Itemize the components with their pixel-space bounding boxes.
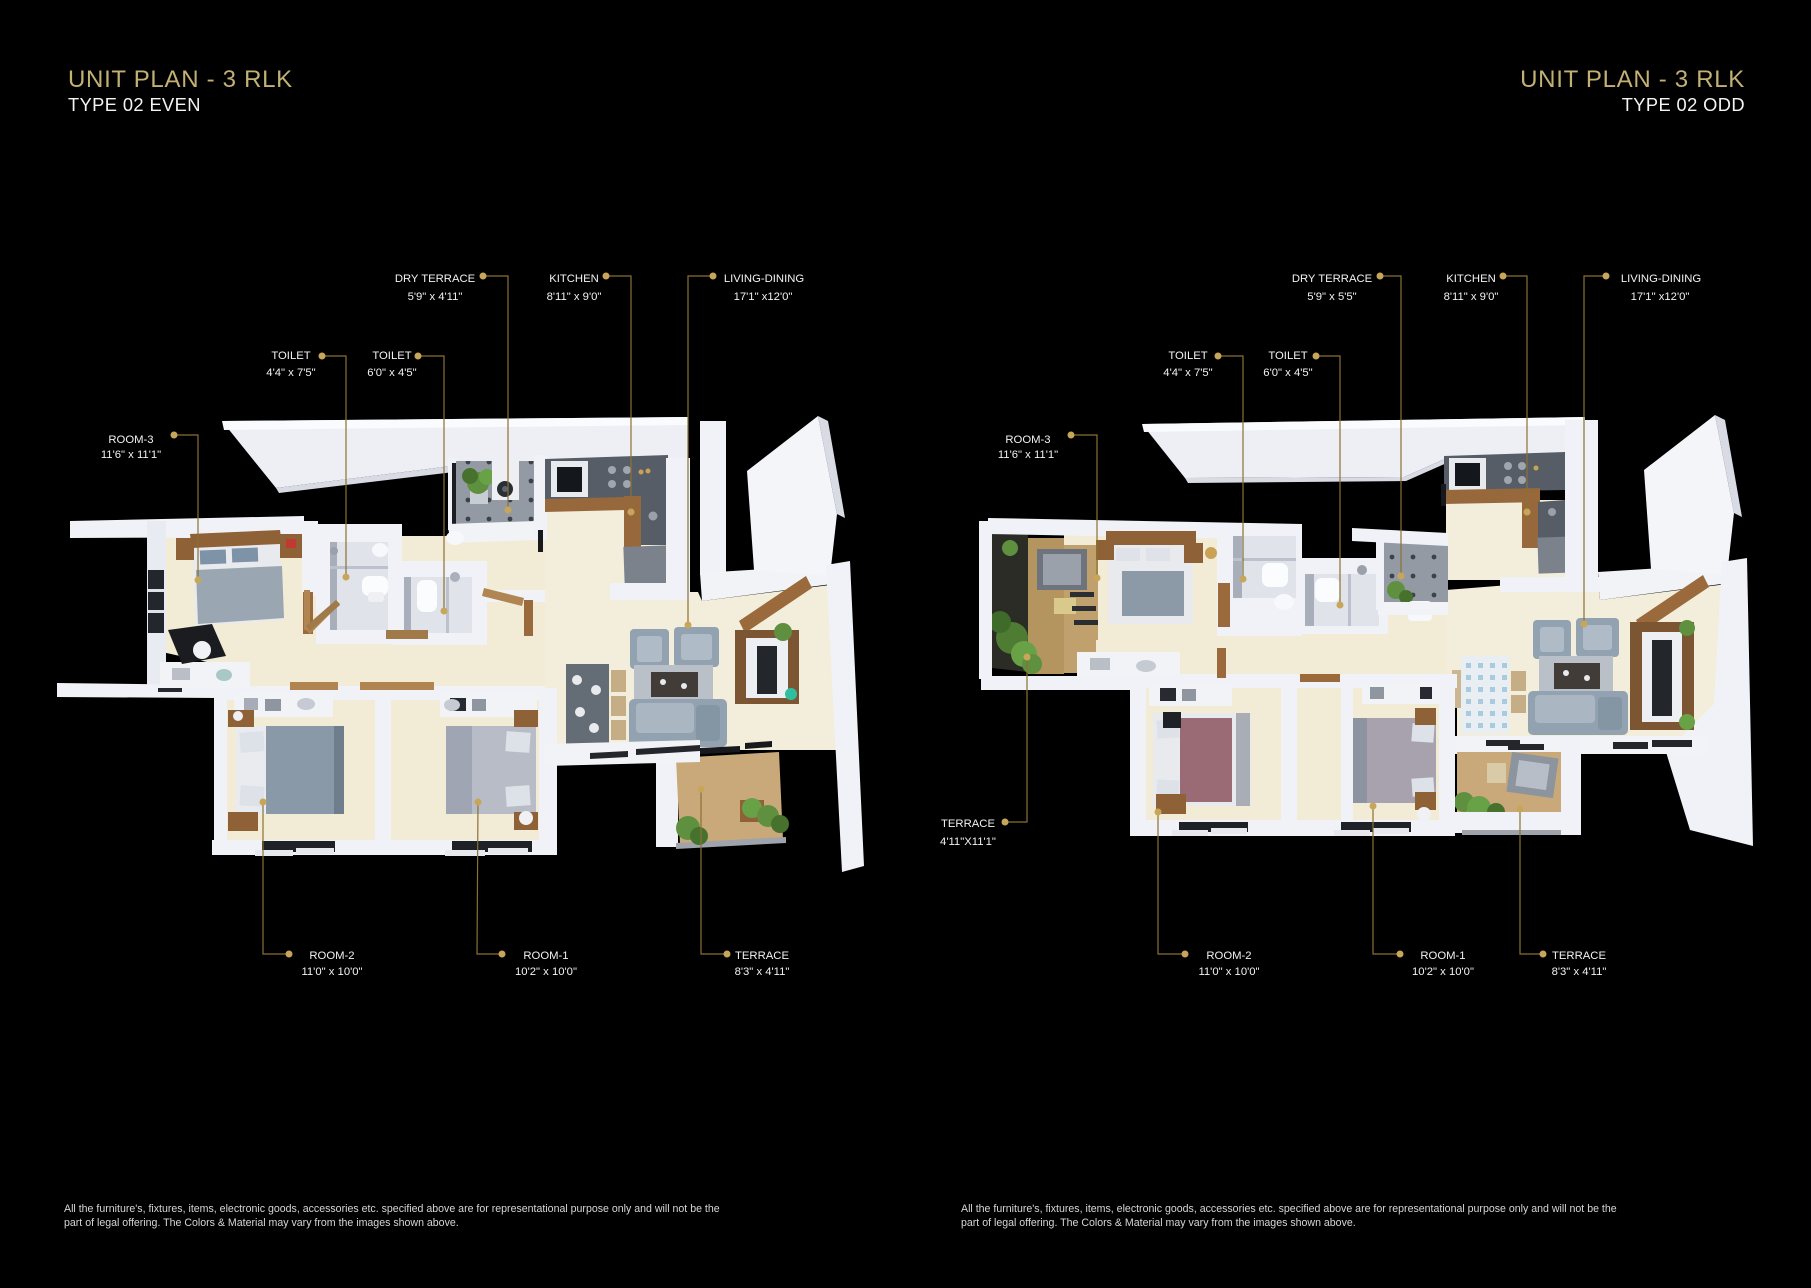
svg-text:17'1" x12'0": 17'1" x12'0" [734,291,793,303]
svg-text:KITCHEN: KITCHEN [1446,273,1496,285]
svg-text:LIVING-DINING: LIVING-DINING [1621,273,1701,285]
svg-text:ROOM-1: ROOM-1 [523,950,568,962]
svg-text:All the furniture's, fixtures,: All the furniture's, fixtures, items, el… [961,1203,1617,1215]
svg-text:ROOM-3: ROOM-3 [1005,434,1050,446]
svg-text:6'0" x 4'5": 6'0" x 4'5" [367,367,416,379]
svg-text:4'11"X11'1": 4'11"X11'1" [940,836,996,848]
svg-text:TERRACE: TERRACE [735,950,789,962]
svg-text:4'4" x 7'5": 4'4" x 7'5" [1163,367,1212,379]
svg-text:6'0" x 4'5": 6'0" x 4'5" [1263,367,1312,379]
svg-text:LIVING-DINING: LIVING-DINING [724,273,804,285]
svg-text:4'4" x 7'5": 4'4" x 7'5" [266,367,315,379]
svg-text:ROOM-2: ROOM-2 [1206,950,1251,962]
svg-text:8'11" x 9'0": 8'11" x 9'0" [547,291,602,303]
svg-text:5'9" x 4'11": 5'9" x 4'11" [408,291,463,303]
svg-text:ROOM-2: ROOM-2 [309,950,354,962]
svg-text:DRY TERRACE: DRY TERRACE [395,273,476,285]
svg-text:11'6" x 11'1": 11'6" x 11'1" [101,449,161,461]
svg-text:ROOM-1: ROOM-1 [1420,950,1465,962]
svg-text:ROOM-3: ROOM-3 [108,434,153,446]
svg-text:5'9" x 5'5": 5'9" x 5'5" [1307,291,1356,303]
svg-text:KITCHEN: KITCHEN [549,273,599,285]
svg-text:11'0" x 10'0": 11'0" x 10'0" [1198,966,1259,978]
svg-text:TERRACE: TERRACE [941,818,995,830]
svg-text:UNIT PLAN - 3 RLK: UNIT PLAN - 3 RLK [68,66,293,93]
svg-text:All the furniture's, fixtures,: All the furniture's, fixtures, items, el… [64,1203,720,1215]
svg-text:11'0" x 10'0": 11'0" x 10'0" [301,966,362,978]
svg-text:8'3" x 4'11": 8'3" x 4'11" [735,966,790,978]
svg-text:17'1" x12'0": 17'1" x12'0" [1631,291,1690,303]
svg-text:11'6" x 11'1": 11'6" x 11'1" [998,449,1058,461]
svg-text:8'11" x 9'0": 8'11" x 9'0" [1444,291,1499,303]
svg-text:TYPE 02 ODD: TYPE 02 ODD [1622,94,1745,115]
svg-text:part of legal offering. The Co: part of legal offering. The Colors & Mat… [64,1217,459,1229]
svg-text:TERRACE: TERRACE [1552,950,1606,962]
svg-text:DRY TERRACE: DRY TERRACE [1292,273,1373,285]
svg-text:part of legal offering. The Co: part of legal offering. The Colors & Mat… [961,1217,1356,1229]
svg-text:TOILET: TOILET [1268,350,1307,362]
svg-text:10'2" x 10'0": 10'2" x 10'0" [1412,966,1474,978]
svg-text:8'3" x 4'11": 8'3" x 4'11" [1552,966,1607,978]
svg-text:TYPE 02 EVEN: TYPE 02 EVEN [68,94,201,115]
svg-text:10'2" x 10'0": 10'2" x 10'0" [515,966,577,978]
svg-text:TOILET: TOILET [271,350,310,362]
svg-text:UNIT PLAN - 3 RLK: UNIT PLAN - 3 RLK [1520,66,1745,93]
svg-text:TOILET: TOILET [372,350,411,362]
svg-text:TOILET: TOILET [1168,350,1207,362]
